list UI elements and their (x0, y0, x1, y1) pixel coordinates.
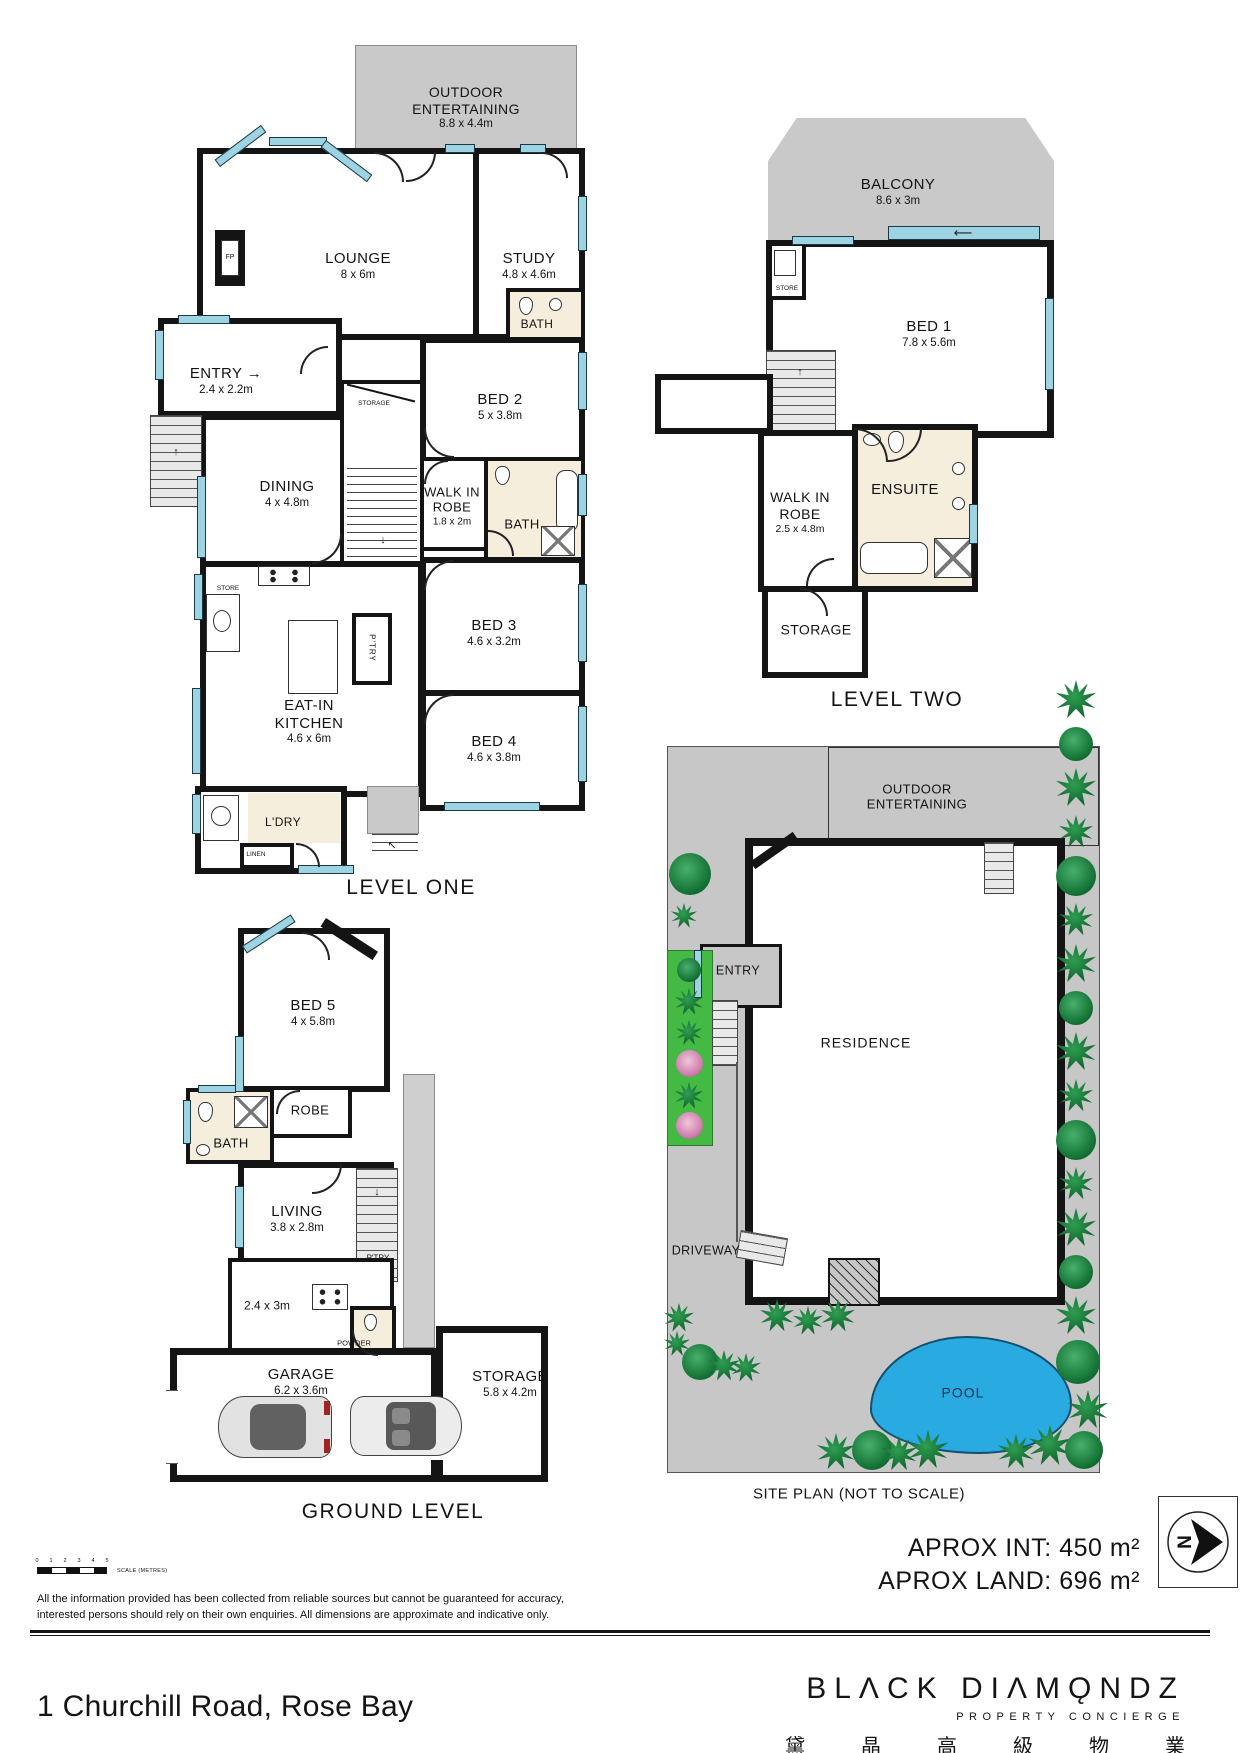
bathtub-icon (556, 470, 578, 532)
approx-areas: APROX INT: 450 m² APROX LAND: 696 m² (700, 1532, 1140, 1597)
vanity-icon (952, 462, 965, 475)
window (445, 144, 475, 153)
room-label-l2-storage: STORAGE (780, 622, 851, 639)
window (1045, 298, 1054, 390)
room-label-bed4: BED 4 4.6 x 3.8m (467, 733, 521, 765)
shower-icon (934, 538, 972, 578)
room-label-bed1: BED 1 7.8 x 5.6m (902, 318, 956, 350)
room-label-entry: ENTRY → 2.4 x 2.2m (190, 365, 262, 397)
agency-name: BLΛCK DIΛMǪNDZ (785, 1672, 1185, 1706)
tree-icon (1059, 991, 1093, 1025)
agency-logo: BLΛCK DIΛMǪNDZ PROPERTY CONCIERGE 黛晶高級物業 (785, 1672, 1185, 1753)
scale-number: 3 (77, 1558, 80, 1564)
down-arrow-icon: ↓ (374, 1186, 380, 1198)
garage-door-opening (166, 1390, 178, 1464)
shower-icon (541, 526, 575, 556)
room-label-ground-bath: BATH (213, 1135, 248, 1150)
residence-building (745, 838, 1065, 1305)
room-label-lounge: LOUNGE 8 x 6m (325, 250, 391, 282)
label-ground-pantry: P'TRY (367, 1253, 390, 1262)
room-label-l2-wir: WALK IN ROBE 2.5 x 4.8m (768, 489, 832, 535)
site-rear-steps (828, 1258, 880, 1306)
agency-chinese-name: 黛晶高級物業 (785, 1730, 1240, 1753)
up-arrow-icon: ↑ (797, 366, 803, 378)
ground-level-title: GROUND LEVEL (302, 1500, 485, 1524)
approx-internal: APROX INT: 450 m² (700, 1532, 1140, 1565)
room-label-wir: WALK IN ROBE 1.8 x 2m (423, 484, 481, 527)
room-label-ensuite: ENSUITE (871, 481, 939, 499)
tree-icon (1056, 1120, 1096, 1160)
car-taillight (324, 1401, 330, 1415)
flower-icon (676, 1050, 703, 1077)
window (235, 1186, 244, 1248)
scale-bar-strip (37, 1567, 107, 1574)
down-arrow-icon: ↓ (380, 534, 386, 546)
window (578, 352, 587, 410)
room-label-study: STUDY 4.8 x 4.6m (502, 250, 556, 282)
floorplan-page: ↓ ↖ ↑ OUTDOOR ENT (0, 0, 1240, 1753)
car-seat (392, 1430, 410, 1446)
room-label-balcony: BALCONY 8.6 x 3m (861, 176, 936, 208)
window (444, 802, 540, 811)
label-powder: POWDER (337, 1340, 371, 1349)
scale-number: 4 (91, 1558, 94, 1564)
stair-direction-arrow: ↖ (387, 839, 396, 852)
svg-text:N: N (1175, 1535, 1196, 1549)
label-pantry: P'TRY (368, 634, 377, 662)
car-cabin (250, 1404, 306, 1450)
site-label-driveway: DRIVEWAY (672, 1244, 740, 1259)
l1-rear-landing (367, 786, 419, 834)
window (578, 474, 587, 516)
label-storage-tiny: STORAGE (358, 400, 390, 408)
room-label-kitchen: EAT-IN KITCHEN 4.6 x 6m (254, 697, 364, 747)
window (197, 476, 206, 558)
room-label-bed3: BED 3 4.6 x 3.2m (467, 617, 521, 649)
car-taillight (324, 1439, 330, 1453)
divider-rule (30, 1630, 1210, 1636)
tree-icon (1059, 1255, 1093, 1289)
label-store-tiny: STORE (776, 285, 798, 293)
tree-icon (1056, 856, 1096, 896)
site-entry-steps (712, 1000, 738, 1066)
scale-number: 1 (49, 1558, 52, 1564)
vanity-icon (952, 497, 965, 510)
north-arrow-icon: N (1158, 1496, 1238, 1588)
shower-icon (234, 1096, 268, 1128)
agency-tagline: PROPERTY CONCIERGE (785, 1711, 1185, 1723)
site-label-entry: ENTRY (716, 964, 760, 979)
label-utility-dims: 2.4 x 3m (244, 1297, 290, 1312)
car-seat (392, 1408, 410, 1424)
level-one-title: LEVEL ONE (346, 876, 475, 900)
window (578, 706, 587, 782)
tree-icon (669, 853, 711, 895)
label-store-tiny: STORE (217, 585, 239, 593)
window (235, 1036, 244, 1092)
room-label-garage: GARAGE 6.2 x 3.6m (268, 1366, 335, 1398)
up-arrow-icon: ↑ (173, 446, 179, 458)
scale-bar-label: SCALE (METRES) (117, 1568, 167, 1574)
site-label-residence: RESIDENCE (821, 1035, 912, 1052)
window (578, 584, 587, 662)
bay-window (269, 137, 327, 146)
room-label-dining: DINING 4 x 4.8m (260, 478, 315, 510)
site-exterior-stairs (984, 842, 1014, 894)
site-label-outdoor: OUTDOOR ENTERTAINING (842, 782, 992, 813)
kitchen-island-icon (288, 620, 338, 694)
tree-icon (1059, 727, 1093, 761)
tree-icon (1065, 1431, 1103, 1469)
label-fireplace: FP (226, 254, 235, 262)
room-label-bed2: BED 2 5 x 3.8m (477, 391, 522, 423)
tree-icon (677, 958, 701, 982)
sink-bowl-icon (213, 610, 231, 632)
room-label-outdoor: OUTDOOR ENTERTAINING 8.8 x 4.4m (386, 84, 546, 132)
scale-number: 0 (35, 1558, 38, 1564)
window (578, 196, 587, 251)
site-label-pool: POOL (942, 1385, 985, 1402)
cooktop-icon (258, 566, 310, 586)
property-address: 1 Churchill Road, Rose Bay (37, 1690, 413, 1724)
window (178, 315, 230, 324)
room-label-bath: BATH (504, 516, 539, 531)
kitchenette-icon (312, 1284, 348, 1310)
room-label-bed5: BED 5 4 x 5.8m (290, 997, 335, 1029)
window (155, 330, 164, 380)
disclaimer-line2: interested persons should rely on their … (37, 1608, 897, 1624)
entry-direction-arrow: → (247, 365, 262, 382)
basin-icon (196, 1144, 210, 1156)
room-label-ground-storage: STORAGE 5.8 x 4.2m (472, 1368, 548, 1400)
level-two-title: LEVEL TWO (831, 688, 964, 712)
l2-stairwell (766, 350, 836, 438)
l1-internal-stairs (347, 468, 417, 560)
label-linen: LINEN (246, 851, 265, 859)
room-label-laundry: L'DRY (265, 815, 301, 829)
l2-landing (655, 374, 773, 434)
window (183, 1100, 191, 1144)
room-label-robe: ROBE (291, 1102, 329, 1117)
tree-icon (1056, 680, 1096, 720)
terrace-strip (403, 1074, 435, 1348)
room-label-living: LIVING 3.8 x 2.8m (270, 1203, 324, 1235)
room-label-upper-bath: BATH (521, 317, 554, 331)
window (192, 688, 201, 774)
driveway-edge-line (736, 1062, 738, 1242)
window (192, 794, 201, 834)
basin-icon (549, 298, 562, 311)
window (969, 504, 978, 544)
tree-icon (1056, 1340, 1100, 1384)
window (792, 236, 854, 245)
scale-number: 5 (105, 1558, 108, 1564)
window (198, 1085, 236, 1093)
window (194, 574, 203, 620)
scale-number: 2 (63, 1558, 66, 1564)
washer-drum-icon (211, 806, 231, 826)
approx-land: APROX LAND: 696 m² (700, 1565, 1140, 1598)
slider-arrow-icon: ⟵ (954, 225, 973, 241)
bathtub-icon (860, 542, 928, 574)
scale-bar: 0 1 2 3 4 5 SCALE (METRES) (37, 1558, 237, 1582)
flower-icon (676, 1112, 703, 1139)
appliance-icon (774, 250, 796, 276)
site-plan-title: SITE PLAN (NOT TO SCALE) (753, 1486, 965, 1503)
l1-entry-exterior-stairs (150, 415, 202, 507)
